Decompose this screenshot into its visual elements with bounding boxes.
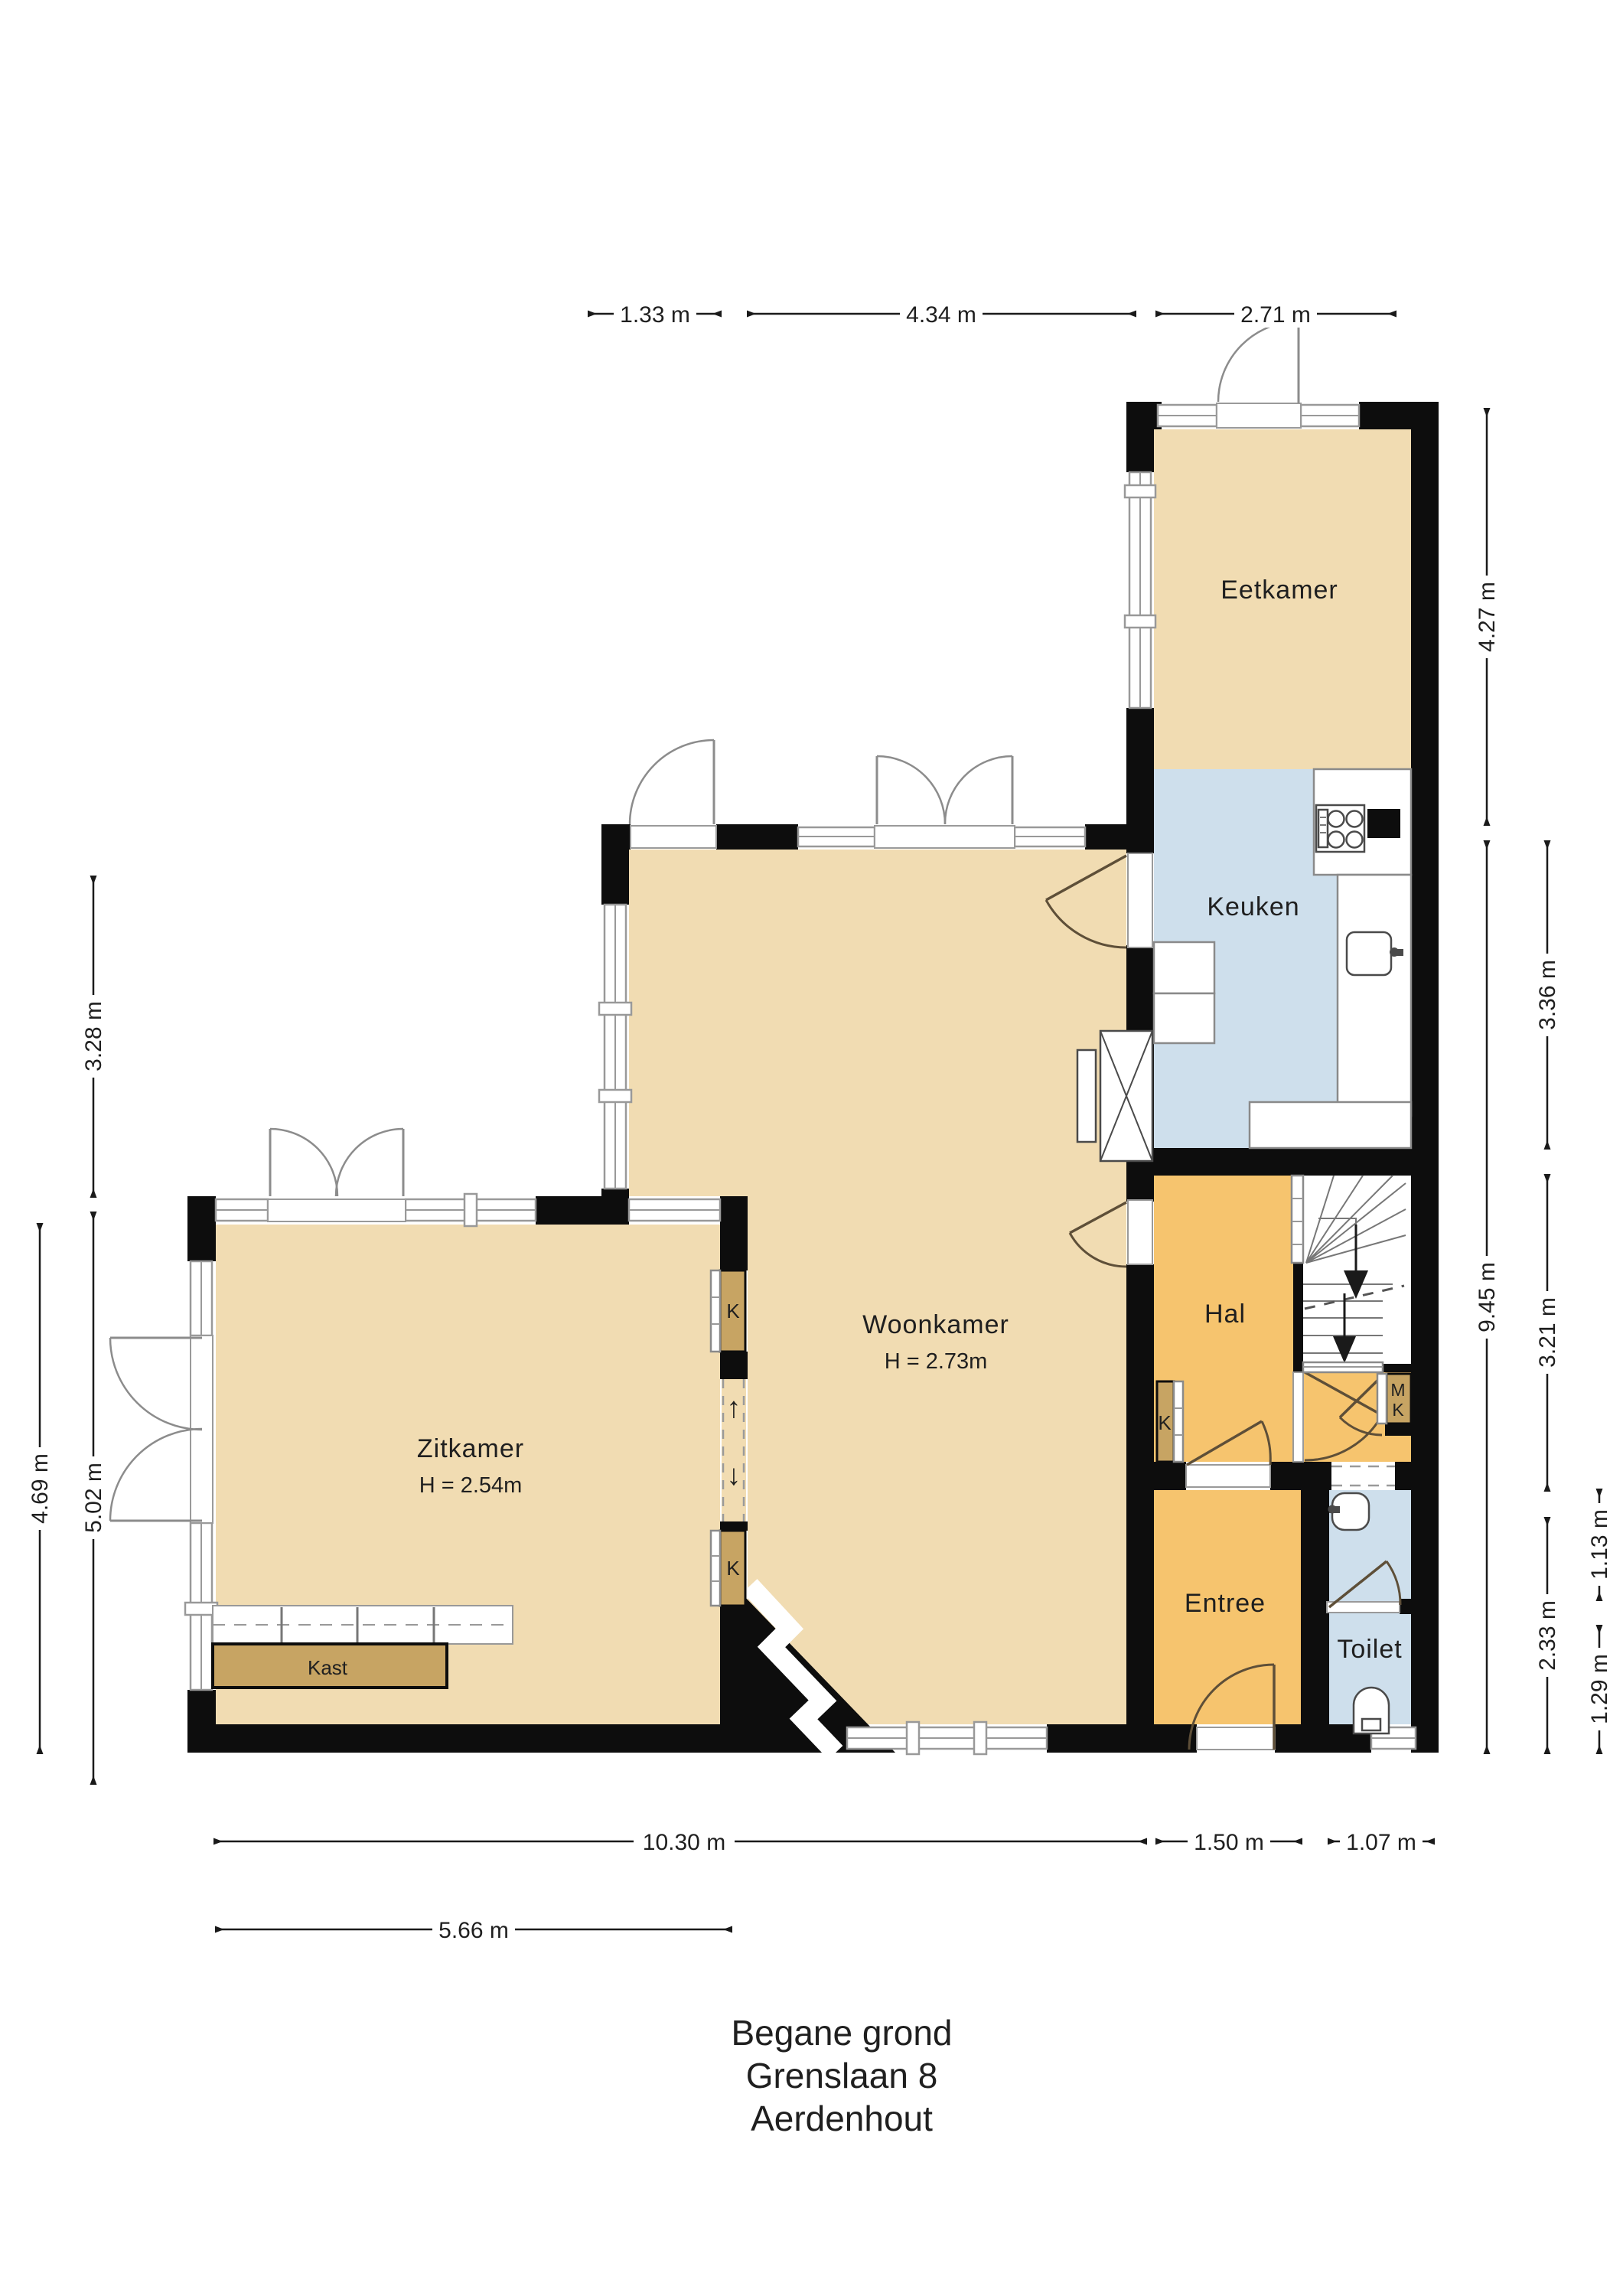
door-woonkamer-terrace-double (875, 756, 1015, 848)
chimney-breast (1077, 1031, 1152, 1161)
svg-text:1.33 m: 1.33 m (620, 302, 690, 328)
svg-text:1.29 m: 1.29 m (1587, 1654, 1612, 1724)
label-toilet: Toilet (1337, 1635, 1402, 1664)
window-zitkamer-top-a (216, 1199, 268, 1221)
label-eetkamer: Eetkamer (1221, 576, 1338, 605)
door-zitkamer-north-double (268, 1129, 406, 1221)
hand-basin-icon (1328, 1493, 1370, 1530)
window-zitkamer-top-b (406, 1194, 536, 1226)
dim-top-1: 4.34 m (748, 298, 1135, 328)
dim-right-1: 9.45 m (1472, 842, 1501, 1753)
window-eetkamer-west (1125, 472, 1155, 708)
label-zitkamer-height: H = 2.54m (419, 1473, 523, 1498)
svg-text:1.13 m: 1.13 m (1587, 1509, 1612, 1580)
window-zitkamer-west-a (191, 1261, 212, 1336)
dim-bottom-0: 10.30 m (215, 1826, 1146, 1855)
dim-bottom-1: 1.50 m (1157, 1826, 1301, 1855)
svg-text:2.71 m: 2.71 m (1240, 302, 1311, 328)
dim-right-0: 4.27 m (1472, 409, 1501, 824)
kitchen-counter-right (1338, 875, 1411, 1116)
title-floor: Begane grond (731, 2013, 952, 2053)
dim-right-4: 2.33 m (1533, 1518, 1562, 1753)
door-zitkamer-west-double (110, 1336, 213, 1523)
svg-text:1.50 m: 1.50 m (1194, 1830, 1264, 1855)
dim-bottom-3: 5.66 m (217, 1914, 731, 1943)
svg-text:9.45 m: 9.45 m (1475, 1262, 1500, 1332)
dim-left-2: 4.69 m (25, 1225, 54, 1753)
floorplan-page: ↑ ↓ Eetkamer Keuken Woonkamer H = 2.73m … (0, 0, 1623, 2296)
kitchen-wall-stub (1367, 809, 1400, 838)
dim-right-5: 1.13 m (1585, 1490, 1614, 1600)
passage-arrow-up: ↑ (727, 1392, 741, 1424)
opening-toilet-lobby (1331, 1463, 1395, 1489)
label-kast: Kast (308, 1656, 348, 1679)
kitchen-cabinet-upper (1154, 942, 1214, 993)
title-city: Aerdenhout (751, 2099, 933, 2138)
svg-text:4.34 m: 4.34 m (906, 302, 976, 328)
svg-text:4.69 m: 4.69 m (28, 1453, 53, 1524)
dim-right-2: 3.36 m (1533, 842, 1562, 1148)
dim-right-3: 3.21 m (1533, 1176, 1562, 1490)
label-entree: Entree (1185, 1589, 1266, 1618)
title-block: Begane grond Grenslaan 8 Aerdenhout (731, 2013, 952, 2138)
label-k-upper: K (726, 1300, 740, 1322)
svg-text:3.36 m: 3.36 m (1535, 960, 1560, 1030)
dim-top-0: 1.33 m (589, 298, 720, 328)
window-woonkamer-south (847, 1722, 1047, 1754)
label-woonkamer: Woonkamer (862, 1310, 1009, 1339)
staircase (1292, 1176, 1411, 1372)
window-woonkamer-top-right (1015, 827, 1085, 846)
svg-text:3.28 m: 3.28 m (81, 1001, 106, 1071)
toilet-icon (1354, 1688, 1389, 1733)
stove-icon (1316, 805, 1364, 852)
window-zitkamer-top-c (629, 1199, 720, 1221)
window-eetkamer-top-right (1301, 405, 1359, 426)
svg-text:10.30 m: 10.30 m (643, 1830, 725, 1855)
label-hal: Hal (1204, 1300, 1246, 1329)
svg-text:5.02 m: 5.02 m (81, 1463, 106, 1533)
passage-arrow-down: ↓ (727, 1459, 741, 1492)
dim-left-1: 5.02 m (79, 1213, 108, 1783)
label-mk-m: M (1390, 1380, 1405, 1400)
dim-top-2: 2.71 m (1157, 298, 1395, 328)
label-mk-k: K (1392, 1400, 1404, 1420)
svg-text:2.33 m: 2.33 m (1535, 1600, 1560, 1671)
dim-left-0: 3.28 m (79, 877, 108, 1196)
door-woonkamer-exterior (630, 740, 716, 848)
floorplan-drawing: ↑ ↓ Eetkamer Keuken Woonkamer H = 2.73m … (0, 0, 1623, 2296)
window-eetkamer-top-left (1158, 405, 1217, 426)
door-eetkamer-exterior (1217, 321, 1301, 428)
svg-text:4.27 m: 4.27 m (1475, 582, 1500, 652)
window-woonkamer-west (599, 905, 631, 1189)
label-k-hal: K (1158, 1411, 1172, 1434)
label-woonkamer-height: H = 2.73m (885, 1349, 988, 1374)
svg-text:5.66 m: 5.66 m (438, 1918, 509, 1943)
svg-text:1.07 m: 1.07 m (1346, 1830, 1416, 1855)
dim-bottom-2: 1.07 m (1329, 1826, 1433, 1855)
label-zitkamer: Zitkamer (417, 1434, 524, 1463)
label-keuken: Keuken (1207, 892, 1299, 921)
kitchen-counter-bottom (1250, 1102, 1411, 1148)
room-floors (216, 429, 1411, 1724)
svg-text:3.21 m: 3.21 m (1535, 1297, 1560, 1368)
dim-right-6: 1.29 m (1585, 1626, 1614, 1753)
kitchen-cabinet-lower (1154, 993, 1214, 1043)
title-street: Grenslaan 8 (746, 2056, 938, 2095)
window-woonkamer-top-left (798, 827, 875, 846)
label-k-lower: K (726, 1557, 740, 1580)
